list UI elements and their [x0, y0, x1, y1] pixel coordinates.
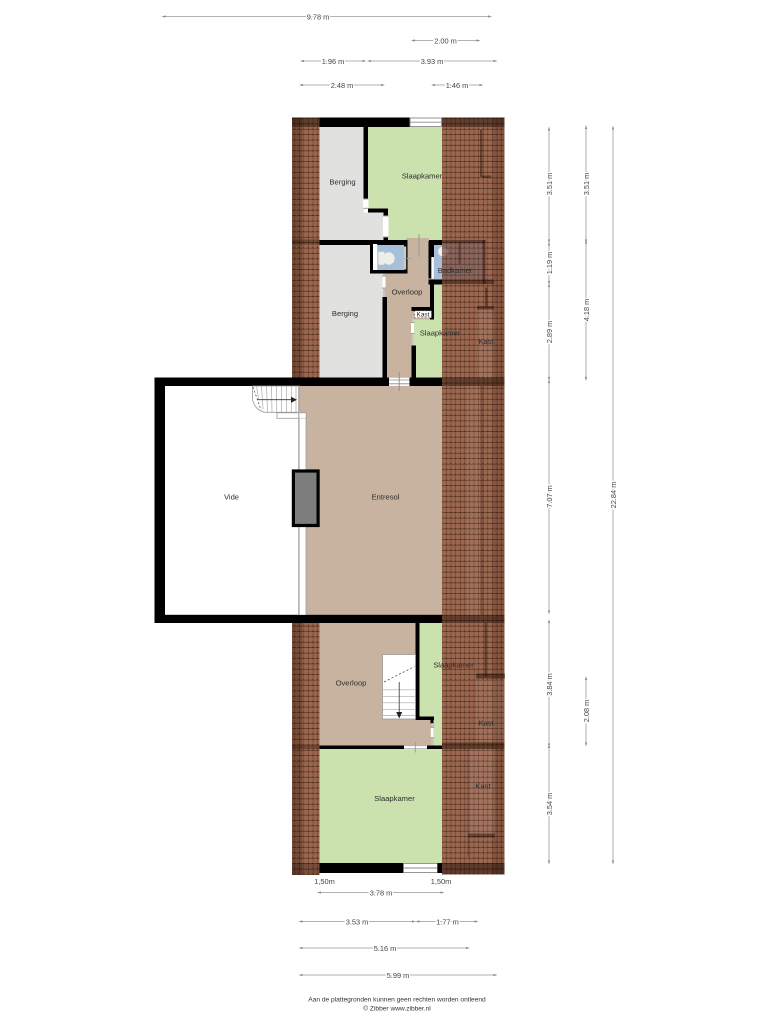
- svg-text:Slaapkamer: Slaapkamer: [433, 660, 474, 669]
- svg-text:5.16 m: 5.16 m: [374, 944, 397, 953]
- svg-text:Berging: Berging: [332, 309, 358, 318]
- svg-text:Overloop: Overloop: [336, 678, 367, 687]
- svg-text:3.84 m: 3.84 m: [545, 673, 554, 696]
- svg-text:Slaapkamer: Slaapkamer: [420, 329, 461, 338]
- svg-text:4.18 m: 4.18 m: [582, 299, 591, 322]
- svg-text:3.51 m: 3.51 m: [582, 173, 591, 196]
- svg-text:2.89 m: 2.89 m: [545, 321, 554, 344]
- svg-text:22.84 m: 22.84 m: [609, 482, 618, 509]
- svg-text:2.48 m: 2.48 m: [331, 81, 354, 90]
- svg-text:Vide: Vide: [224, 493, 239, 502]
- svg-text:Slaapkamer: Slaapkamer: [402, 172, 443, 181]
- svg-text:1.96 m: 1.96 m: [322, 57, 345, 66]
- svg-text:3.93 m: 3.93 m: [421, 57, 444, 66]
- svg-text:1,50m: 1,50m: [431, 877, 452, 886]
- svg-text:3.53 m: 3.53 m: [346, 918, 369, 927]
- svg-text:Kast: Kast: [416, 311, 429, 318]
- svg-text:Aan de plattegronden kunnen ge: Aan de plattegronden kunnen geen rechten…: [308, 996, 486, 1003]
- svg-text:1.19 m: 1.19 m: [545, 252, 554, 275]
- svg-text:© Zibber www.zibber.nl: © Zibber www.zibber.nl: [363, 1005, 431, 1013]
- svg-text:1,50m: 1,50m: [314, 877, 335, 886]
- svg-text:2.08 m: 2.08 m: [582, 700, 591, 723]
- svg-text:7.07 m: 7.07 m: [545, 485, 554, 508]
- svg-text:1.46 m: 1.46 m: [446, 81, 469, 90]
- svg-text:3.51 m: 3.51 m: [545, 173, 554, 196]
- svg-text:Kast: Kast: [478, 337, 494, 346]
- svg-text:5.99 m: 5.99 m: [387, 971, 410, 980]
- svg-text:Kast: Kast: [478, 719, 494, 728]
- svg-text:Badkamer: Badkamer: [438, 266, 473, 275]
- svg-text:Kast: Kast: [475, 781, 491, 790]
- svg-text:1.77 m: 1.77 m: [436, 918, 459, 927]
- svg-text:Overloop: Overloop: [392, 288, 423, 297]
- svg-text:9.78 m: 9.78 m: [307, 13, 330, 22]
- svg-text:2.00 m: 2.00 m: [434, 37, 457, 46]
- svg-text:3.78 m: 3.78 m: [370, 889, 393, 898]
- svg-text:Entresol: Entresol: [372, 493, 400, 502]
- svg-text:Slaapkamer: Slaapkamer: [374, 794, 415, 803]
- svg-text:Berging: Berging: [329, 178, 355, 187]
- svg-text:3.54 m: 3.54 m: [545, 793, 554, 816]
